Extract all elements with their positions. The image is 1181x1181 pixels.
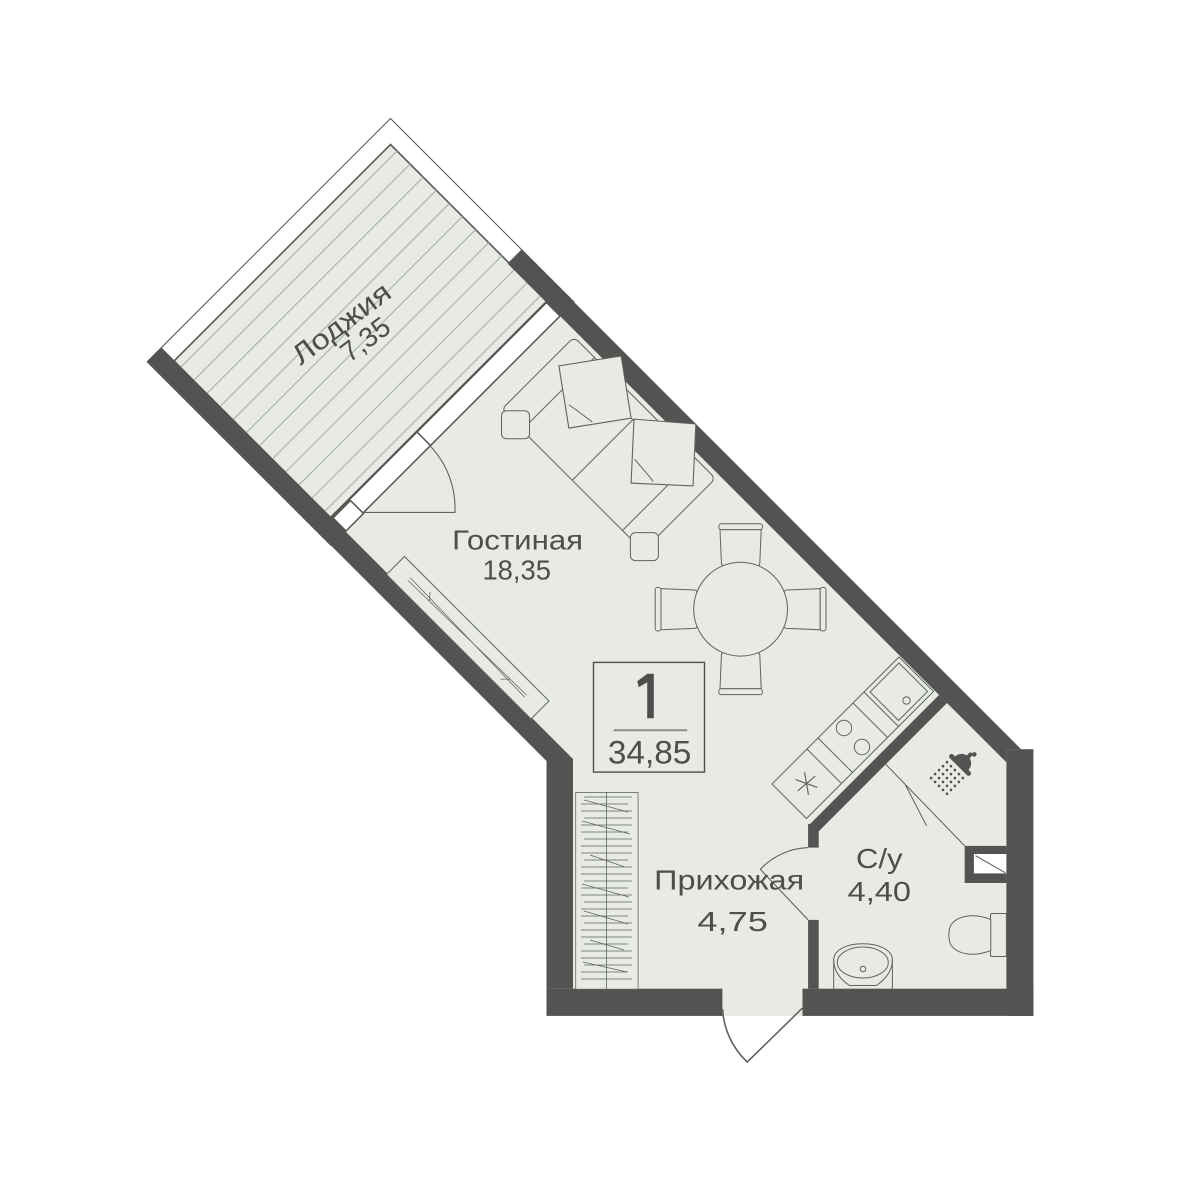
svg-text:Прихожая: Прихожая [654, 865, 804, 896]
svg-text:Гостиная: Гостиная [452, 525, 583, 556]
svg-text:4,40: 4,40 [848, 876, 911, 907]
svg-text:4,75: 4,75 [697, 906, 768, 937]
svg-text:18,35: 18,35 [482, 555, 551, 586]
svg-text:34,85: 34,85 [608, 735, 692, 771]
svg-text:С/у: С/у [856, 843, 903, 874]
